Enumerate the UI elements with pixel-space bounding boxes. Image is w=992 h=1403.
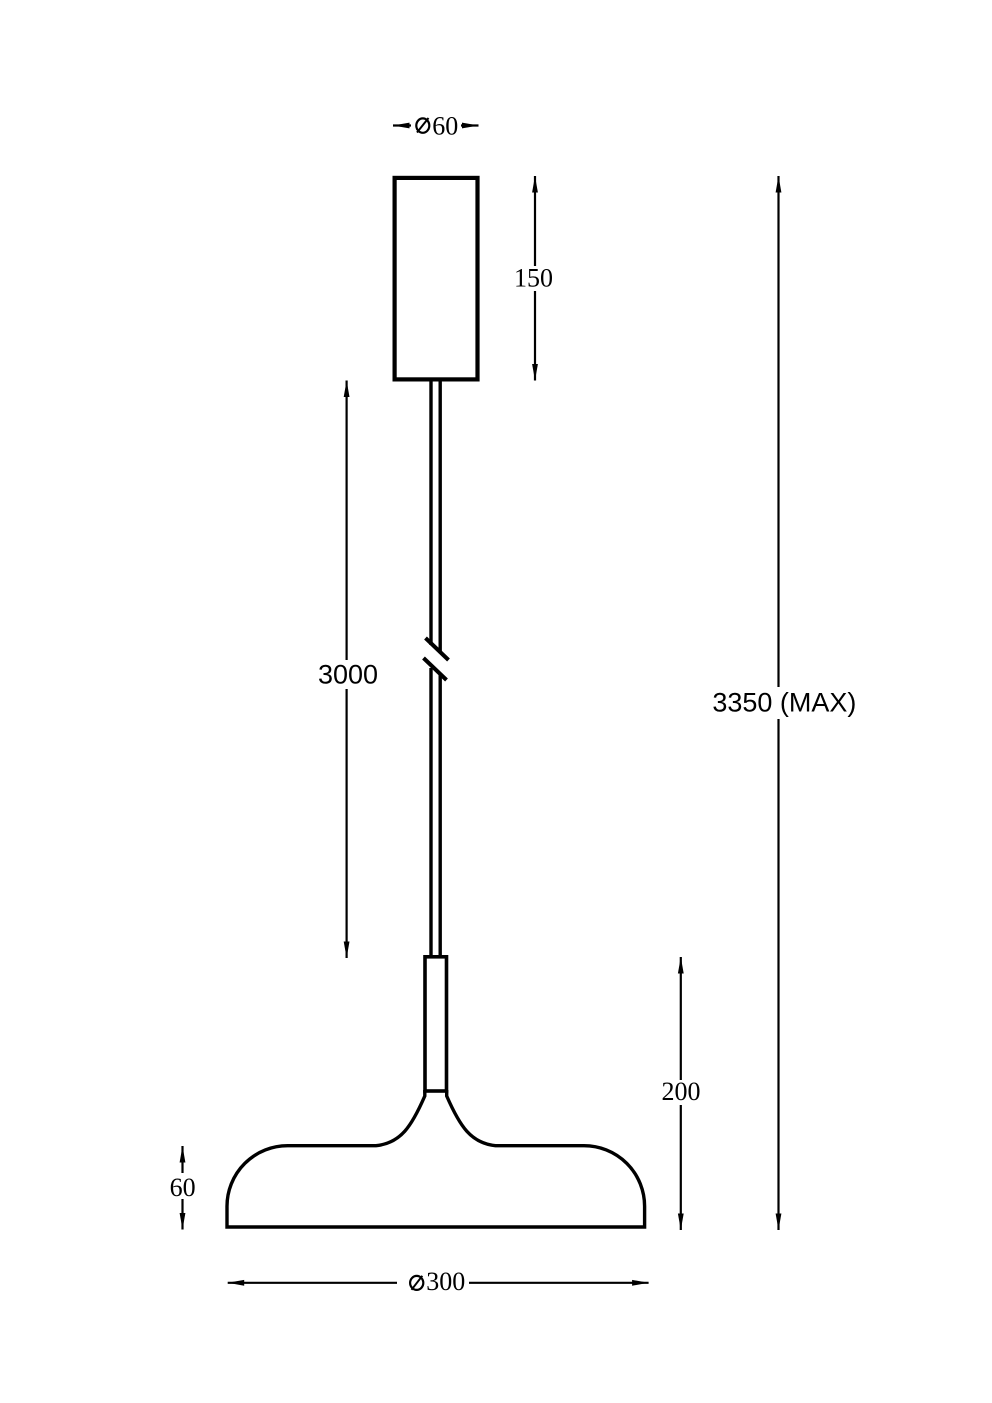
svg-text:60: 60 [432,111,458,140]
svg-text:200: 200 [662,1077,701,1106]
svg-text:300: 300 [426,1267,465,1296]
svg-text:150: 150 [514,264,553,293]
svg-text:3350 (MAX): 3350 (MAX) [712,688,856,718]
svg-text:3000: 3000 [318,660,378,690]
svg-text:60: 60 [170,1173,196,1202]
